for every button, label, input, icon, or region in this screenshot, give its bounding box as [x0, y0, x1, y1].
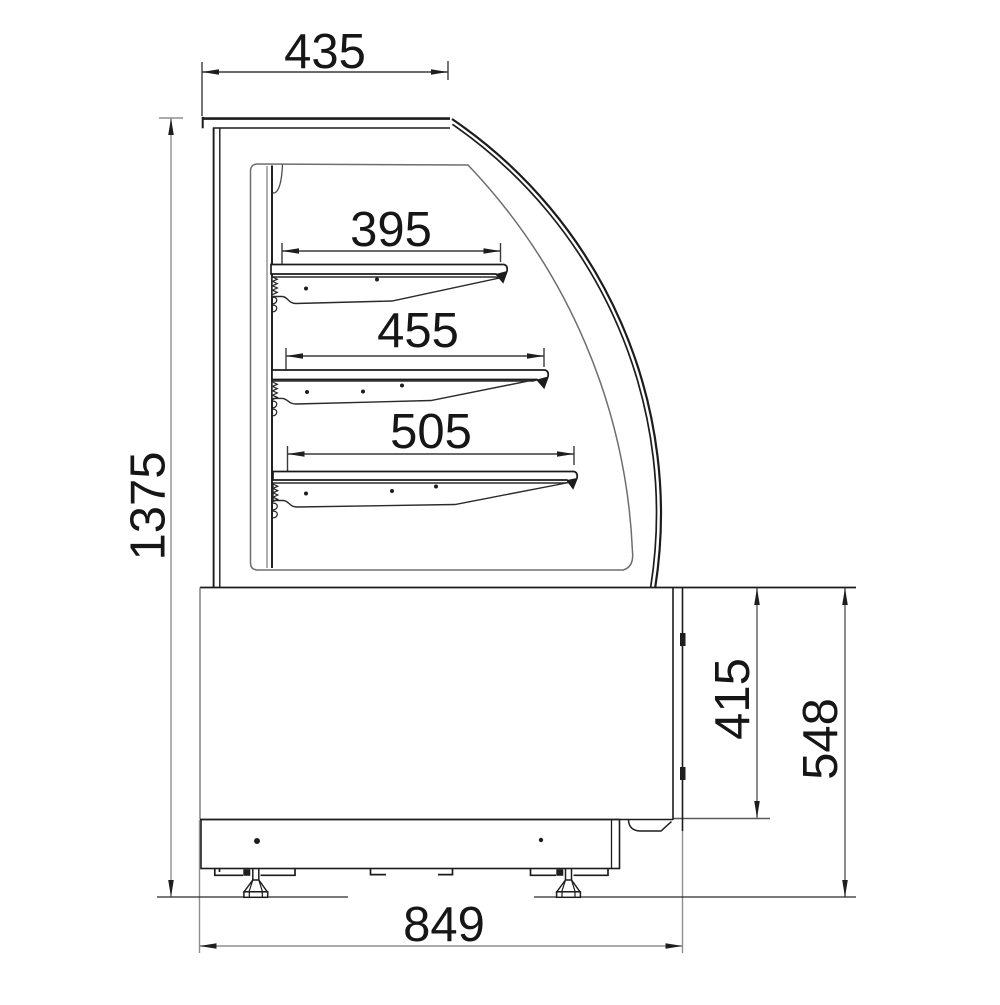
svg-text:455: 455 [377, 304, 459, 358]
svg-text:849: 849 [403, 898, 485, 952]
svg-text:415: 415 [706, 658, 760, 740]
svg-text:435: 435 [284, 25, 366, 79]
svg-text:505: 505 [390, 405, 472, 459]
svg-text:548: 548 [794, 698, 848, 780]
svg-text:1375: 1375 [122, 451, 176, 560]
svg-text:395: 395 [350, 203, 432, 257]
